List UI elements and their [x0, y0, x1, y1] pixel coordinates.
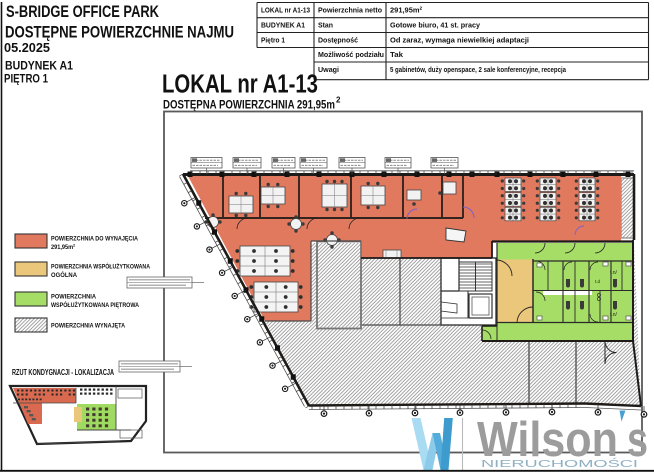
svg-text:WSPÓŁUŻYTKOWANA PIĘTROWA: WSPÓŁUŻYTKOWANA PIĘTROWA [51, 300, 139, 309]
svg-text:BUDYNEK A1: BUDYNEK A1 [261, 21, 306, 30]
svg-text:POWIERZCHNIA DO WYNAJĘCIA: POWIERZCHNIA DO WYNAJĘCIA [51, 236, 138, 243]
svg-text:LOKAL nr A1-13: LOKAL nr A1-13 [261, 6, 310, 15]
svg-text:5 gabinetów, duży openspace, 2: 5 gabinetów, duży openspace, 2 sale konf… [390, 65, 567, 74]
svg-text:S-BRIDGE OFFICE PARK: S-BRIDGE OFFICE PARK [6, 3, 159, 21]
svg-text:RZUT KONDYGNACJI - LOKALIZACJA: RZUT KONDYGNACJI - LOKALIZACJA [12, 368, 114, 377]
svg-text:BUDYNEK A1: BUDYNEK A1 [5, 59, 73, 73]
svg-text:Piętro 1: Piętro 1 [261, 36, 286, 45]
svg-text:291,95m²: 291,95m² [390, 6, 422, 15]
svg-text:PIĘTRO 1: PIĘTRO 1 [4, 72, 48, 86]
svg-text:POWIERZCHNIA WYNAJĘTA: POWIERZCHNIA WYNAJĘTA [51, 323, 125, 330]
svg-text:2: 2 [336, 96, 341, 105]
svg-text:Powierzchnia netto: Powierzchnia netto [318, 6, 382, 15]
svg-text:DOSTĘPNE POWIERZCHNIE NAJMU: DOSTĘPNE POWIERZCHNIE NAJMU [5, 24, 234, 42]
svg-text:Stan: Stan [318, 21, 333, 30]
svg-text:Uwagi: Uwagi [318, 65, 339, 74]
svg-text:OGÓLNA: OGÓLNA [51, 270, 77, 279]
svg-text:Tak: Tak [390, 50, 404, 59]
svg-text:LOKAL nr A1-13: LOKAL nr A1-13 [162, 71, 318, 99]
svg-text:05.2025: 05.2025 [4, 41, 50, 55]
svg-text:Gotowe biuro, 41 st. pracy: Gotowe biuro, 41 st. pracy [390, 21, 481, 30]
svg-text:Od zaraz, wymaga niewielkiej a: Od zaraz, wymaga niewielkiej adaptacji [390, 36, 529, 45]
svg-text:t.n/: t.n/ [610, 270, 618, 276]
svg-text:DOSTĘPNA POWIERZCHNIA 291,95m: DOSTĘPNA POWIERZCHNIA 291,95m [163, 98, 335, 112]
svg-text:POWIERZCHNIA: POWIERZCHNIA [51, 294, 96, 301]
svg-text:291,95m²: 291,95m² [51, 244, 76, 251]
svg-text:POWIERZCHNIA WSPÓŁUŻYTKOWANA: POWIERZCHNIA WSPÓŁUŻYTKOWANA [51, 262, 150, 271]
svg-text:t.d: t.d [595, 279, 601, 284]
svg-text:t.n/: t.n/ [610, 312, 618, 318]
svg-text:NIERUCHOMOŚCI: NIERUCHOMOŚCI [481, 457, 638, 470]
svg-text:Dostępność: Dostępność [318, 36, 358, 45]
svg-text:Możliwość podziału: Możliwość podziału [318, 50, 384, 59]
